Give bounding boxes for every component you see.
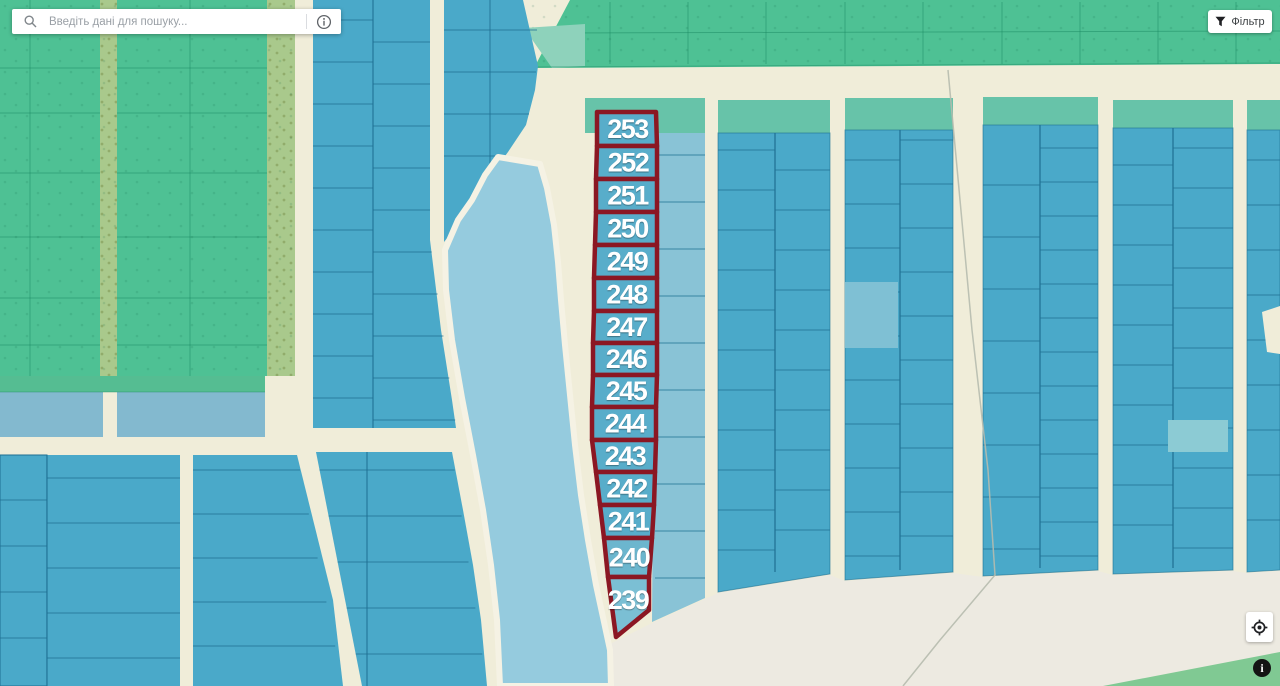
parcel-number-label: 243 [605,441,647,471]
search-icon [24,15,37,28]
search-bar[interactable] [12,9,341,34]
filter-funnel-icon [1215,16,1226,27]
map-app-screen: 2532522512502492482472462452442432422412… [0,0,1280,686]
parcel-number-label: 241 [608,507,650,537]
parcel-number-label: 251 [607,181,649,211]
locate-button[interactable] [1246,612,1273,642]
parcel-number-label: 240 [609,543,650,573]
parcel-number-label: 249 [607,247,649,277]
map-canvas[interactable]: 2532522512502492482472462452442432422412… [0,0,1280,686]
filter-button[interactable]: Фільтр [1208,10,1272,33]
parcel-number-label: 253 [607,114,649,144]
parcel-number-label: 247 [606,312,647,342]
info-circle-icon [316,14,332,30]
parcel-number-label: 239 [608,585,650,615]
parcel-number-label: 252 [608,148,649,178]
parcel-number-label: 245 [606,376,648,406]
parcel-number-label: 248 [606,280,648,310]
search-input[interactable] [47,15,306,29]
info-icon: i [1260,661,1263,676]
filter-button-label: Фільтр [1231,16,1264,28]
parcel-number-label: 242 [606,474,647,504]
map-attribution-button[interactable]: i [1253,659,1271,677]
parcel-number-label: 250 [607,214,648,244]
parcel-number-label: 246 [606,344,648,374]
crosshair-target-icon [1251,619,1268,636]
parcel-number-label: 244 [605,409,647,439]
search-info-button[interactable] [307,9,341,34]
